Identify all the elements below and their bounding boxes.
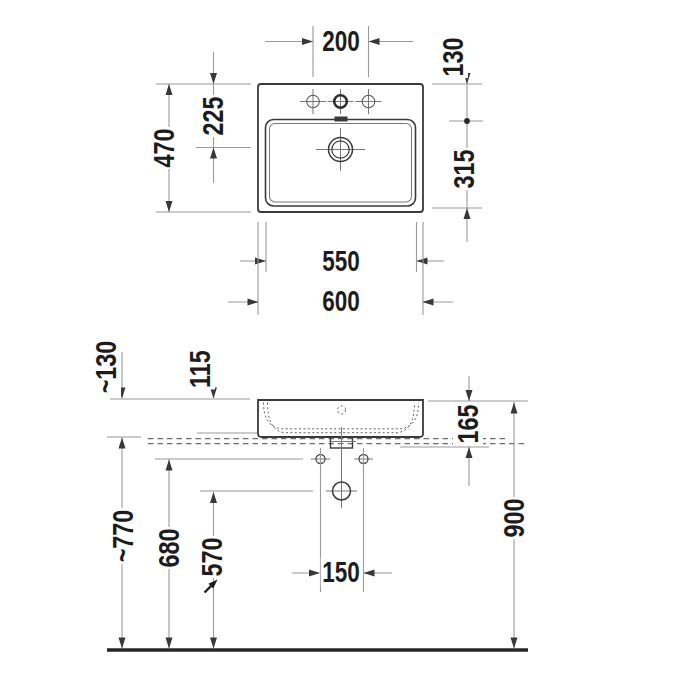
- overflow-slot: [335, 117, 348, 122]
- dim-label-rim-to-counter: 165: [453, 403, 483, 445]
- dim-label-rim-height: 900: [499, 497, 529, 539]
- basin-profile-outline: [258, 400, 423, 437]
- dim-label-fixing-spacing: 150: [321, 557, 362, 587]
- dim-label-basin-width: 550: [321, 246, 362, 276]
- reference-dot: [464, 118, 470, 124]
- top-view-dimensions: [156, 26, 483, 315]
- drain-top: [316, 128, 365, 171]
- top-view-object: [258, 84, 423, 212]
- front-view-dimensions: [107, 350, 528, 649]
- dim-label-tap-spacing: 200: [321, 26, 362, 56]
- dim-label-rim-to-deck: 115: [185, 349, 215, 390]
- hidden-tap-hole: [338, 406, 346, 414]
- dim-label-rear-to-drain: 225: [198, 95, 228, 137]
- dim-label-rim-to-underside: ~130: [91, 339, 121, 395]
- dim-label-tap-to-front: 315: [449, 148, 479, 190]
- dim-label-drain-height: 570: [197, 536, 227, 578]
- dim-label-width: 600: [321, 286, 362, 316]
- washbasin-technical-drawing: 200 130 315 225 470 550 600 ~130 115 165…: [0, 0, 700, 700]
- tap-holes: [300, 89, 382, 114]
- dim-label-depth: 470: [149, 127, 179, 169]
- arrow-ne-icon: [205, 580, 218, 593]
- dim-label-fixing-height: 680: [154, 527, 184, 569]
- dim-label-counter-height: ~770: [108, 508, 138, 564]
- dim-label-rear-to-tap: 130: [438, 36, 468, 78]
